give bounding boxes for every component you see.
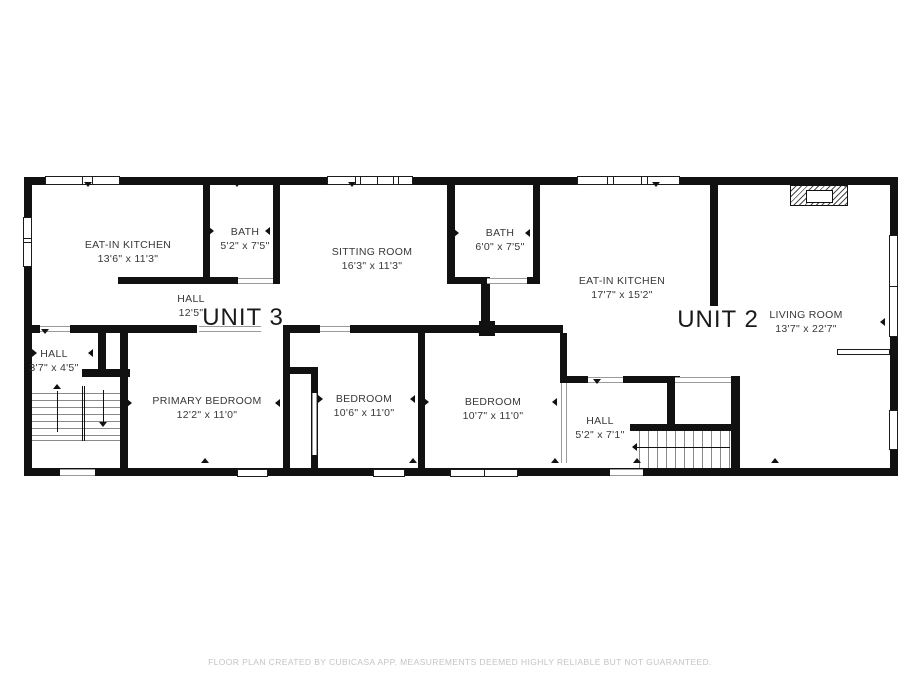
door-tick bbox=[771, 458, 779, 463]
door-tick bbox=[712, 276, 717, 284]
door-tick bbox=[552, 398, 557, 406]
room-dimensions: 13'7" x 22'7" bbox=[769, 322, 842, 336]
stair-tread bbox=[729, 431, 730, 468]
room-name: HALL bbox=[575, 414, 624, 428]
room-name: BEDROOM bbox=[334, 392, 395, 406]
wall-segment bbox=[273, 180, 280, 284]
door-tick bbox=[318, 395, 323, 403]
door-opening bbox=[675, 377, 731, 383]
door-opening bbox=[487, 278, 527, 284]
door-tick bbox=[652, 182, 660, 187]
stair-tread bbox=[711, 431, 712, 468]
half-wall bbox=[837, 349, 890, 355]
door-opening bbox=[610, 469, 643, 476]
wall-segment bbox=[731, 376, 740, 470]
wall-segment bbox=[350, 325, 563, 333]
room-dimensions: 10'7" x 11'0" bbox=[463, 409, 524, 423]
door-opening bbox=[238, 278, 273, 284]
wall-segment bbox=[98, 325, 106, 375]
window-mullion bbox=[613, 177, 614, 184]
stair-arrow-head bbox=[632, 443, 637, 451]
room-name: PRIMARY BEDROOM bbox=[152, 394, 261, 408]
window-mullion bbox=[393, 177, 394, 184]
floor-plan-structure bbox=[0, 0, 920, 690]
wall-segment bbox=[710, 180, 718, 306]
room-name: SITTING ROOM bbox=[332, 245, 413, 259]
window-mullion bbox=[24, 242, 31, 243]
stair-tread bbox=[32, 435, 120, 436]
room-label-primary-bedroom: PRIMARY BEDROOM 12'2" x 11'0" bbox=[152, 394, 261, 422]
room-label-living-room: LIVING ROOM 13'7" x 22'7" bbox=[769, 308, 842, 336]
stair-edge bbox=[32, 440, 120, 441]
footer-disclaimer: FLOOR PLAN CREATED BY CUBICASA APP. MEAS… bbox=[0, 657, 920, 667]
door-tick bbox=[233, 182, 241, 187]
room-name: HALL bbox=[29, 347, 78, 361]
door-tick bbox=[127, 399, 132, 407]
room-label-hall-entry: HALL 3'7" x 4'5" bbox=[29, 347, 78, 375]
door-tick bbox=[454, 229, 459, 237]
door-tick bbox=[633, 458, 641, 463]
door-tick bbox=[348, 182, 356, 187]
wall-segment bbox=[533, 180, 540, 284]
stair-arrow-down-head bbox=[99, 422, 107, 427]
window bbox=[577, 176, 680, 185]
wall-segment bbox=[283, 325, 290, 470]
stair-tread bbox=[32, 407, 120, 408]
stair-arrow-up-head bbox=[53, 384, 61, 389]
wall-segment bbox=[667, 376, 675, 427]
room-name: EAT-IN KITCHEN bbox=[85, 238, 171, 252]
door-tick bbox=[209, 227, 214, 235]
room-dimensions: 5'2" x 7'5" bbox=[220, 239, 269, 253]
door-tick bbox=[593, 379, 601, 384]
door-tick bbox=[880, 318, 885, 326]
room-dimensions: 12'2" x 11'0" bbox=[152, 408, 261, 422]
stair-arrow-down-shaft bbox=[103, 390, 104, 422]
window-mullion bbox=[398, 177, 399, 184]
door-tick bbox=[410, 395, 415, 403]
room-label-eat-in-kitchen-u3: EAT-IN KITCHEN 13'6" x 11'3" bbox=[85, 238, 171, 266]
stair-tread bbox=[693, 431, 694, 468]
stair-tread bbox=[32, 428, 120, 429]
room-label-bedroom-1: BEDROOM 10'6" x 11'0" bbox=[334, 392, 395, 420]
window bbox=[889, 410, 898, 450]
window-mullion bbox=[92, 177, 93, 184]
room-name: BEDROOM bbox=[463, 395, 524, 409]
window-mullion bbox=[377, 177, 378, 184]
wall-segment bbox=[283, 367, 318, 374]
room-name: EAT-IN KITCHEN bbox=[579, 274, 665, 288]
stair-tread bbox=[684, 431, 685, 468]
room-label-bath-u3: BATH 5'2" x 7'5" bbox=[220, 225, 269, 253]
door-tick bbox=[525, 229, 530, 237]
door-opening bbox=[312, 393, 317, 455]
room-name: BATH bbox=[475, 226, 524, 240]
stair-tread bbox=[32, 400, 120, 401]
door-opening bbox=[561, 383, 567, 463]
wall-segment bbox=[630, 424, 733, 431]
window bbox=[373, 469, 405, 477]
room-dimensions: 3'7" x 4'5" bbox=[29, 361, 78, 375]
room-dimensions: 16'3" x 11'3" bbox=[332, 259, 413, 273]
door-tick bbox=[201, 458, 209, 463]
door-tick bbox=[275, 399, 280, 407]
window-mullion bbox=[24, 238, 31, 239]
room-label-bath-u2: BATH 6'0" x 7'5" bbox=[475, 226, 524, 254]
wall-segment bbox=[120, 325, 128, 470]
wall-segment bbox=[118, 277, 238, 284]
window-mullion bbox=[890, 286, 897, 287]
stair-tread bbox=[720, 431, 721, 468]
room-dimensions: 13'6" x 11'3" bbox=[85, 252, 171, 266]
stair-rail bbox=[82, 386, 83, 441]
room-dimensions: 6'0" x 7'5" bbox=[475, 240, 524, 254]
room-label-hall-u3: HALL 12'5" bbox=[177, 292, 204, 320]
unit-label-3: UNIT 3 bbox=[202, 304, 284, 332]
room-dimensions: 10'6" x 11'0" bbox=[334, 406, 395, 420]
door-tick bbox=[409, 458, 417, 463]
window-mullion bbox=[607, 177, 608, 184]
window-mullion bbox=[82, 177, 83, 184]
stair-tread bbox=[675, 431, 676, 468]
door-tick bbox=[551, 458, 559, 463]
door-tick bbox=[41, 329, 49, 334]
wall-segment bbox=[24, 177, 898, 185]
unit-label-2: UNIT 2 bbox=[677, 306, 759, 334]
stair-tread bbox=[666, 431, 667, 468]
wall-segment bbox=[527, 277, 540, 284]
window-mullion bbox=[647, 177, 648, 184]
room-dimensions: 17'7" x 15'2" bbox=[579, 288, 665, 302]
window bbox=[237, 469, 268, 477]
wall-segment bbox=[560, 376, 588, 383]
stair-arrow-up-shaft bbox=[57, 391, 58, 432]
room-label-bedroom-2: BEDROOM 10'7" x 11'0" bbox=[463, 395, 524, 423]
room-dimensions: 12'5" bbox=[177, 306, 204, 320]
door-opening bbox=[60, 469, 95, 476]
door-tick bbox=[88, 349, 93, 357]
wall-segment bbox=[24, 325, 40, 333]
window-mullion bbox=[484, 470, 485, 476]
door-tick bbox=[84, 182, 92, 187]
wall-segment bbox=[70, 325, 197, 333]
wall-segment bbox=[479, 321, 495, 336]
window-mullion bbox=[641, 177, 642, 184]
stair-tread bbox=[32, 414, 120, 415]
room-label-eat-in-kitchen-u2: EAT-IN KITCHEN 17'7" x 15'2" bbox=[579, 274, 665, 302]
room-label-sitting-room: SITTING ROOM 16'3" x 11'3" bbox=[332, 245, 413, 273]
wall-segment bbox=[560, 333, 567, 378]
floor-plan: EAT-IN KITCHEN 13'6" x 11'3" BATH 5'2" x… bbox=[0, 0, 920, 690]
room-name: LIVING ROOM bbox=[769, 308, 842, 322]
room-name: BATH bbox=[220, 225, 269, 239]
door-tick bbox=[424, 398, 429, 406]
stair-tread bbox=[32, 393, 120, 394]
stair-arrow-shaft bbox=[637, 447, 730, 448]
fireplace-firebox bbox=[806, 190, 833, 203]
room-name: HALL bbox=[177, 292, 204, 306]
stair-tread bbox=[657, 431, 658, 468]
room-label-hall-u2: HALL 5'2" x 7'1" bbox=[575, 414, 624, 442]
stair-tread bbox=[702, 431, 703, 468]
window bbox=[327, 176, 413, 185]
window-mullion bbox=[360, 177, 361, 184]
door-tick bbox=[841, 182, 849, 187]
stair-rail bbox=[84, 386, 85, 441]
room-dimensions: 5'2" x 7'1" bbox=[575, 428, 624, 442]
door-opening bbox=[320, 326, 350, 332]
stair-tread bbox=[648, 431, 649, 468]
